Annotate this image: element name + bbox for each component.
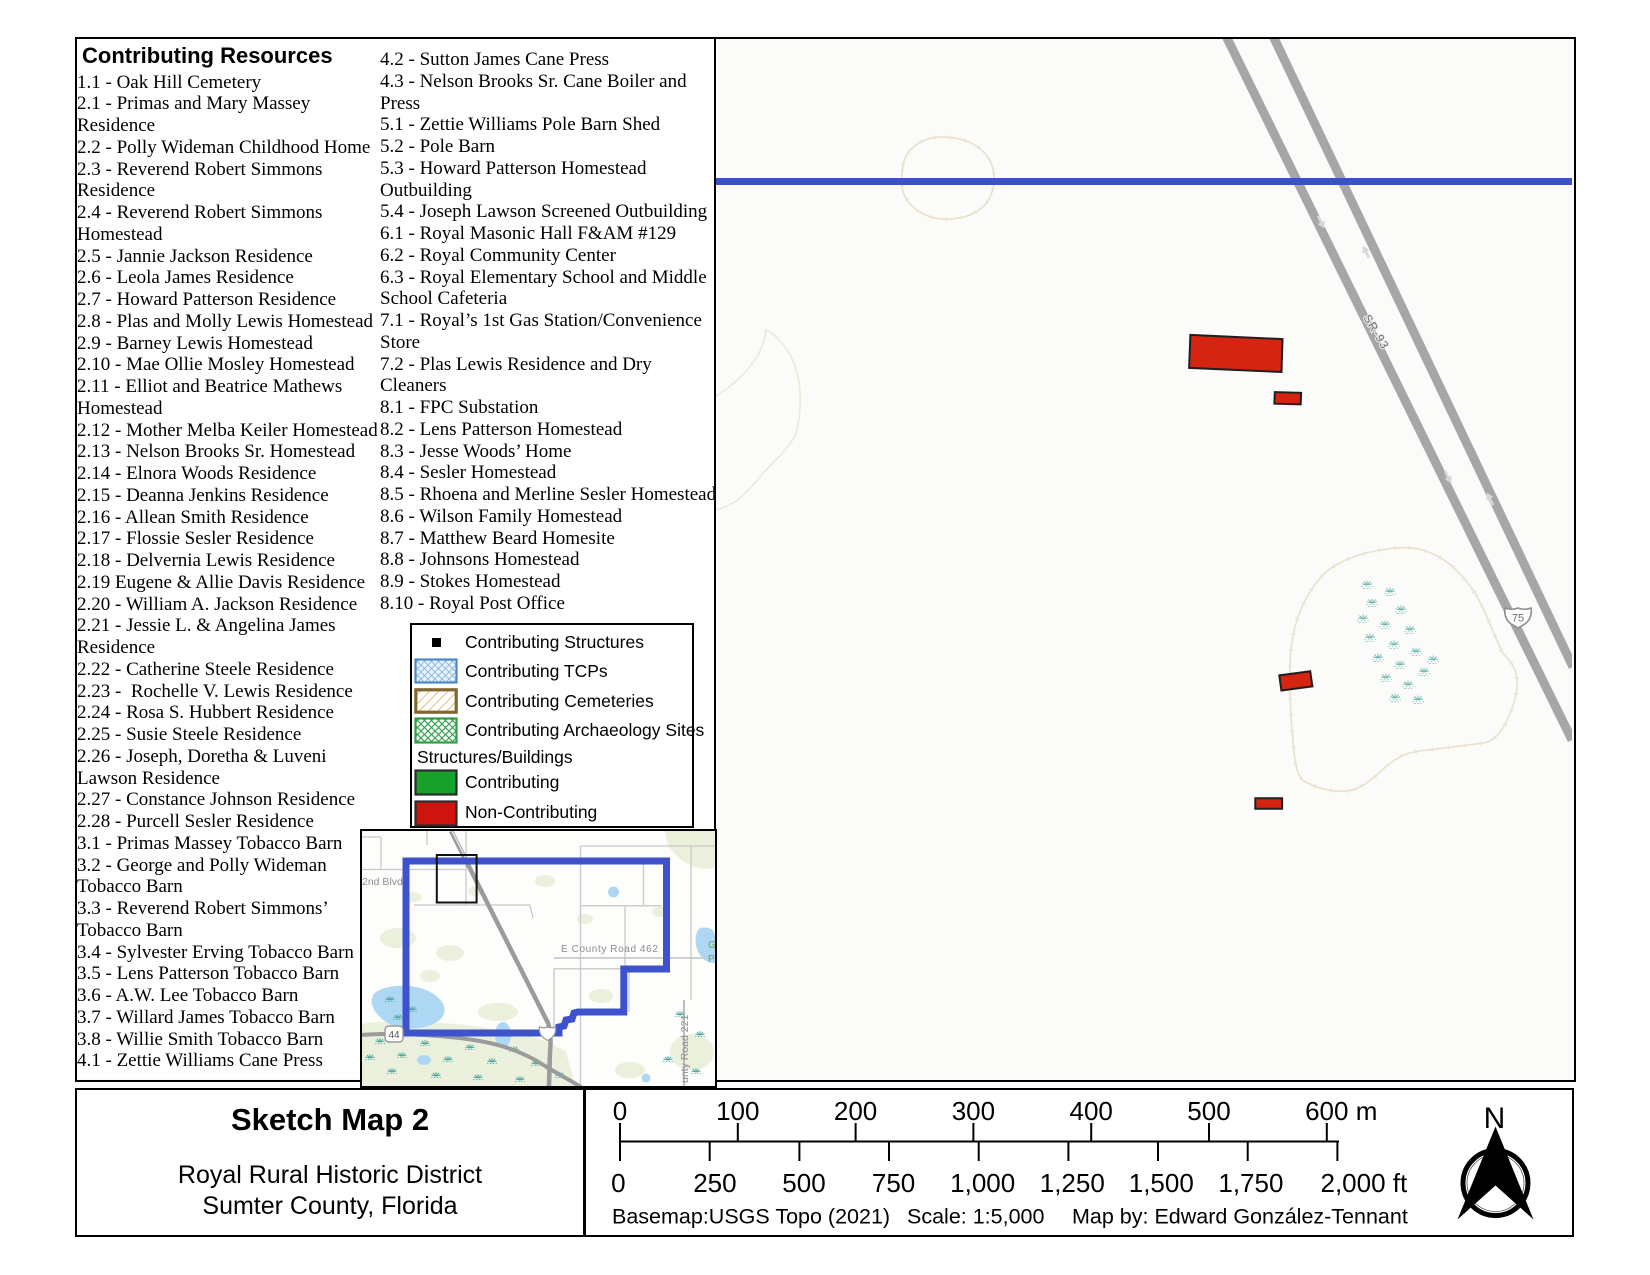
svg-text:1,000: 1,000 bbox=[950, 1168, 1015, 1198]
svg-text:1,250: 1,250 bbox=[1040, 1168, 1105, 1198]
svg-text:500: 500 bbox=[1187, 1096, 1230, 1126]
svg-text:Map by: Edward González-Tennan: Map by: Edward González-Tennant bbox=[1072, 1204, 1408, 1228]
svg-text:600 m: 600 m bbox=[1305, 1096, 1377, 1126]
svg-text:unty Road 221: unty Road 221 bbox=[679, 1015, 691, 1083]
svg-text:750: 750 bbox=[872, 1168, 915, 1198]
svg-text:500: 500 bbox=[782, 1168, 825, 1198]
svg-text:100: 100 bbox=[716, 1096, 759, 1126]
svg-text:2nd Blvd: 2nd Blvd bbox=[362, 876, 403, 888]
svg-text:0: 0 bbox=[613, 1096, 627, 1126]
svg-text:300: 300 bbox=[952, 1096, 995, 1126]
svg-text:E County Road 462: E County Road 462 bbox=[561, 944, 658, 955]
svg-text:P: P bbox=[708, 954, 715, 965]
svg-text:0: 0 bbox=[611, 1168, 625, 1198]
svg-text:2,000 ft: 2,000 ft bbox=[1321, 1168, 1409, 1198]
svg-text:200: 200 bbox=[834, 1096, 877, 1126]
svg-text:400: 400 bbox=[1070, 1096, 1113, 1126]
svg-text:250: 250 bbox=[693, 1168, 736, 1198]
svg-text:Scale: 1:5,000: Scale: 1:5,000 bbox=[907, 1204, 1045, 1228]
svg-text:G: G bbox=[708, 940, 716, 951]
svg-text:75: 75 bbox=[1512, 613, 1524, 625]
svg-text:1,750: 1,750 bbox=[1218, 1168, 1283, 1198]
svg-text:Basemap:USGS Topo (2021): Basemap:USGS Topo (2021) bbox=[612, 1204, 890, 1228]
svg-text:1,500: 1,500 bbox=[1129, 1168, 1194, 1198]
svg-text:44: 44 bbox=[388, 1030, 400, 1041]
